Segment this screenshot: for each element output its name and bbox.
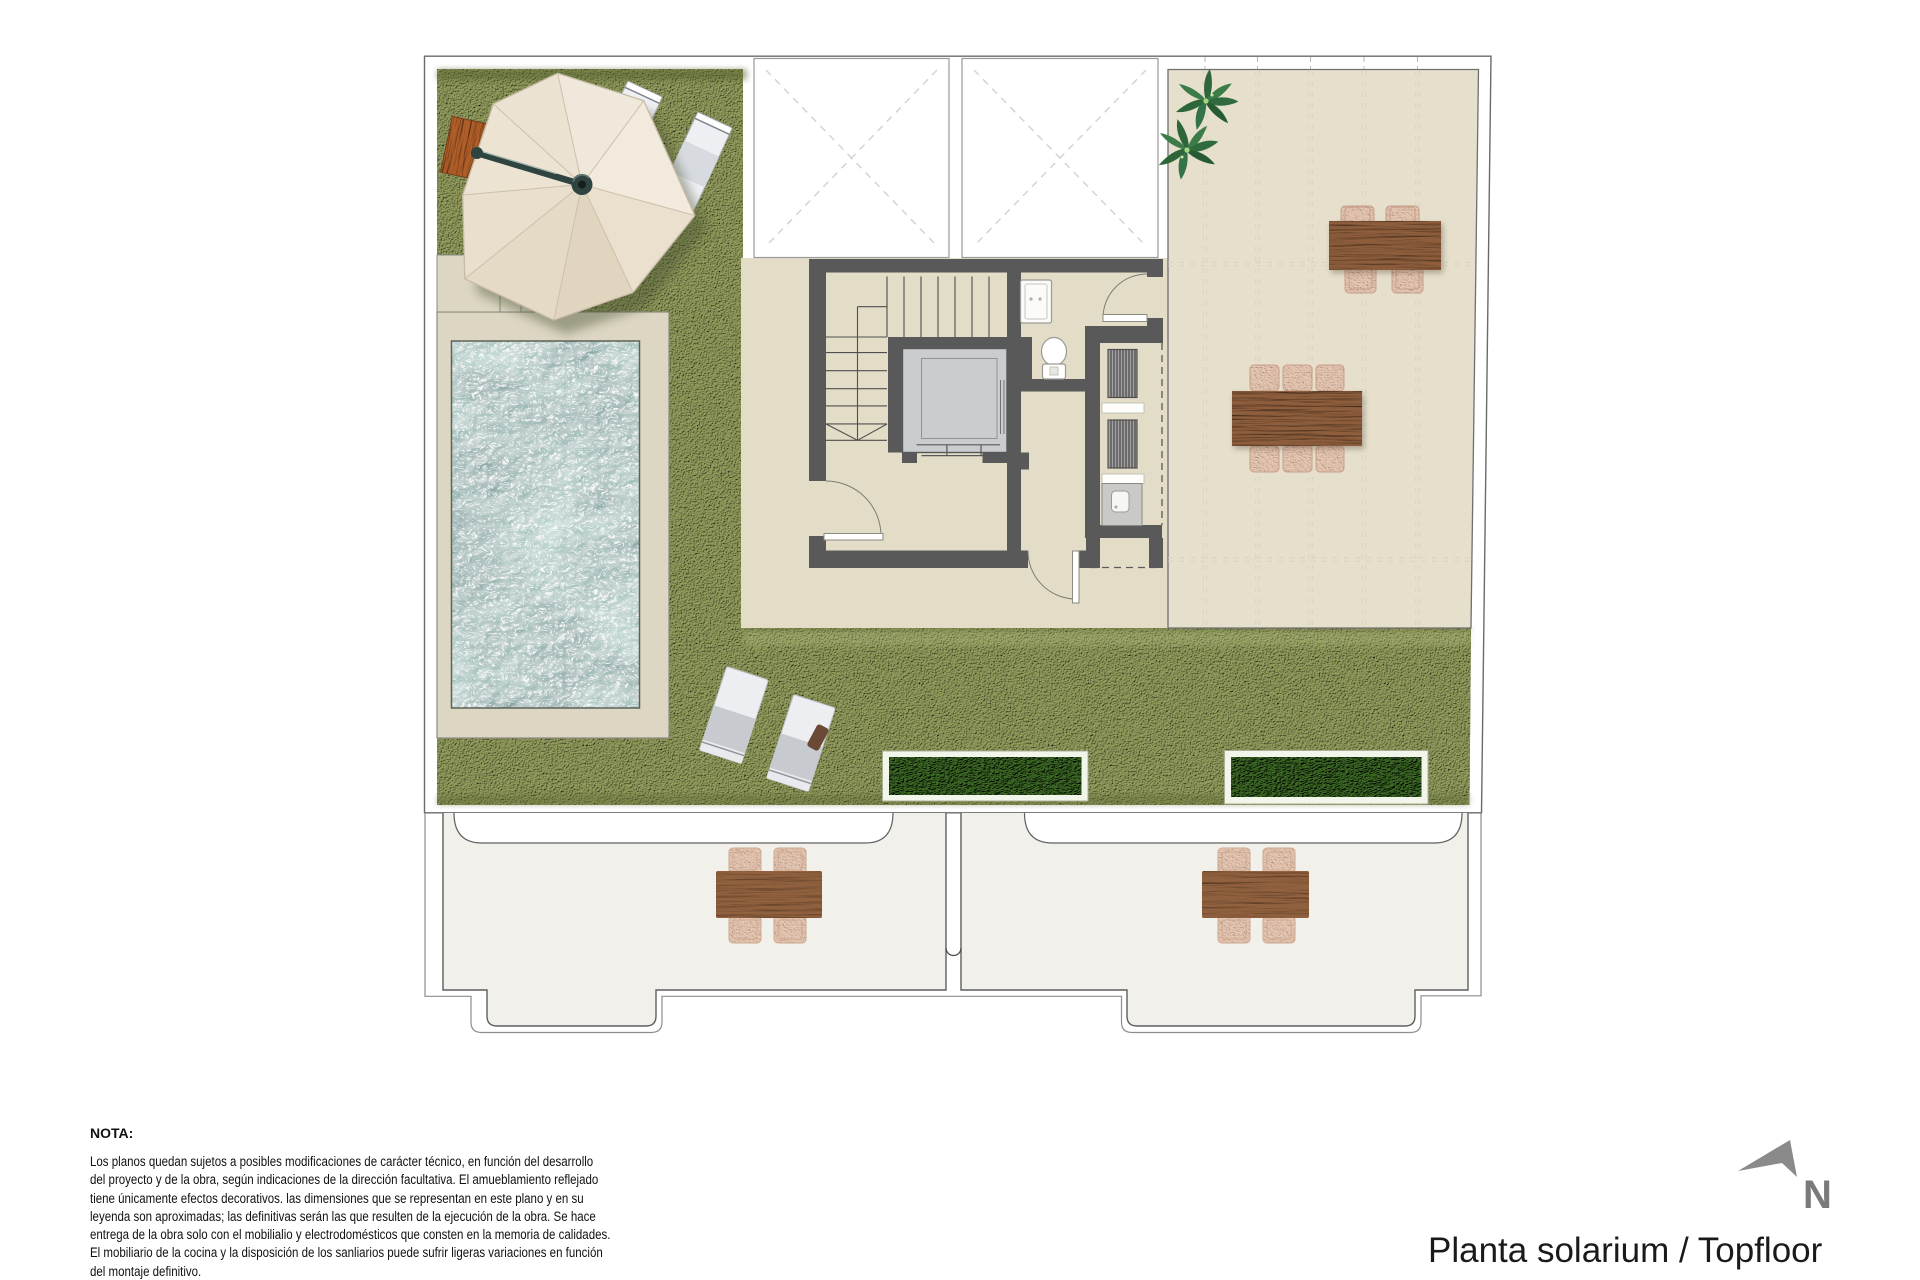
- svg-text:N: N: [1803, 1173, 1832, 1217]
